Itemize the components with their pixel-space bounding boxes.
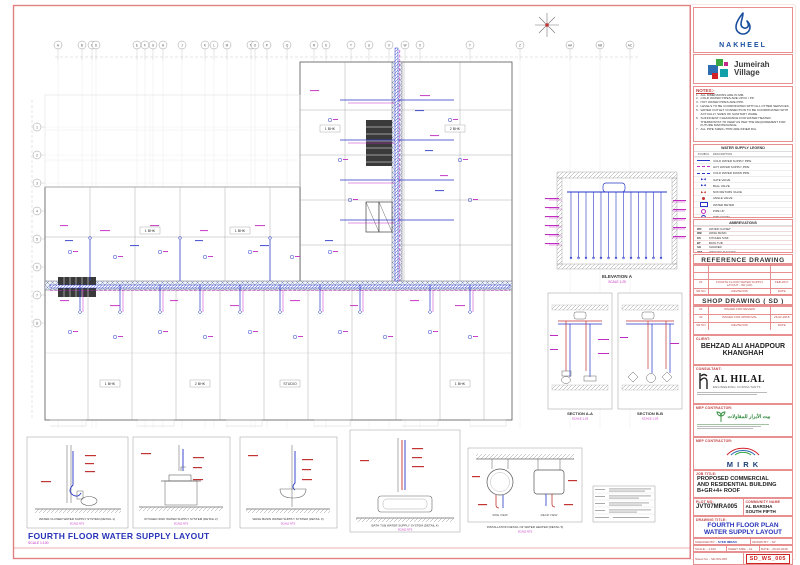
grid-bubble: Z [519, 43, 521, 47]
svg-text:BATH TUB WATER SUPPLY SYSTEM (: BATH TUB WATER SUPPLY SYSTEM (DETAIL 4) [372, 524, 439, 528]
shop-drawing-header: SHOP DRAWING ( SD ) [693, 295, 793, 305]
svg-text:INSTALLATION DETAIL OF WATER H: INSTALLATION DETAIL OF WATER HEATER (DET… [487, 525, 564, 529]
detail-wash-basin: WASH BASIN WATER SUPPLY SYSTEM (DETAIL 3… [240, 437, 337, 528]
drawing-title-line2: WATER SUPPLY LAYOUT [694, 529, 792, 536]
nakheel-droplet-icon [731, 11, 755, 37]
legend-symbol-valve-red: ▶◀ [701, 191, 706, 194]
svg-text:WASH BASIN WATER SUPPLY SYSTEM: WASH BASIN WATER SUPPLY SYSTEM (DETAIL 3… [252, 517, 323, 521]
layout-scale: SCALE 1:100 [28, 541, 210, 545]
mep1-name: بيت الأبرار للمقاولات [728, 414, 771, 420]
legend-symbol-line-blue-dash [697, 173, 710, 174]
plot-value: JVT07MRA005 [694, 504, 743, 510]
floor-plan-canvas: ABCDEFGHJKLMNOPQRSTUVWXYZAAABAC12345678 [0, 0, 800, 565]
detail-kitchen-sink: KITCHEN SINK WATER SUPPLY SYSTEM (DETAIL… [133, 437, 230, 528]
nakheel-logo-box: NAKHEEL [693, 7, 793, 53]
svg-text:SECTION B-B: SECTION B-B [637, 411, 663, 416]
client-label: CLIENT: [694, 336, 792, 341]
abbreviations-box: ABBREVIATIONS WCWATER CLOSETWBWASH BASIN… [693, 219, 793, 253]
meta-row-3: Sheet No: - SD-WS-005 SD_WS_005 [693, 552, 793, 565]
consultant-name: AL HILAL [713, 374, 765, 385]
grid-bubble: 7 [36, 293, 38, 297]
legend-col-symbol: SYMBOL [694, 152, 713, 156]
svg-text:SCALE 1:25: SCALE 1:25 [572, 417, 589, 421]
stamp-cell: SD_WS_005 [743, 553, 793, 565]
revision-row [694, 272, 792, 279]
roof-terrace-outline [45, 95, 300, 187]
svg-text:WATER CLOSER WATER SUPPLY SYST: WATER CLOSER WATER SUPPLY SYSTEM (DETAIL… [39, 517, 115, 521]
legend-symbol-valve-blue: ▶◀ [701, 178, 706, 181]
legend-col-desc: DESCRIPTION [713, 152, 732, 156]
client-box: CLIENT: BEHZAD ALI AHADPOUR KHANGHAH [693, 335, 793, 365]
svg-text:SCALE 1:25: SCALE 1:25 [608, 280, 626, 284]
mep1-address-line [697, 428, 753, 429]
balconies [50, 420, 506, 426]
revision-row: 01FOURTH FLOOR WATER SUPPLY LAYOUT - SD … [694, 279, 792, 288]
grid-bubble: 5 [36, 237, 38, 241]
svg-text:1 BHK: 1 BHK [455, 382, 466, 386]
heater-notes-table [593, 486, 655, 522]
mep-contractor-1-box: MEP CONTRACTOR: بيت الأبرار للمقاولات [693, 404, 793, 437]
shop-drawing-table: 01ISSUED FOR REVIEW02ISSUED FOR APPROVAL… [693, 305, 793, 335]
meta-row-2: SCALE: - 1:100 SHEET SIZE: - A1 DATE: - … [693, 545, 793, 552]
layout-title: FOURTH FLOOR WATER SUPPLY LAYOUT [28, 531, 210, 541]
checked-by-value: SYED IMRAN [718, 540, 737, 544]
svg-text:KITCHEN SINK WATER SUPPLY SYST: KITCHEN SINK WATER SUPPLY SYSTEM (DETAIL… [144, 517, 217, 521]
legend-symbol-line-magenta [697, 166, 710, 167]
revision-row: SR NOREVISIONSDATE [694, 288, 792, 295]
grid-bubble: P [266, 43, 268, 47]
legend-rows: COLD WATER SUPPLY PIPEHOT WATER SUPPLY P… [694, 157, 792, 218]
svg-text:SECTION A-A: SECTION A-A [567, 411, 593, 416]
consultant-address-line [697, 394, 757, 395]
mep2-name: M I R K [694, 461, 792, 469]
svg-text:1 BHK: 1 BHK [145, 229, 156, 233]
client-name-line2: KHANGHAH [694, 350, 792, 357]
shop-drawing-title: SHOP DRAWING ( SD ) [694, 296, 792, 305]
village-text: Village [734, 69, 770, 78]
grid-bubble: L [213, 43, 215, 47]
legend-symbol-line-blue [697, 160, 710, 161]
abbreviation-row: WMWASHING MACHINE [694, 249, 792, 253]
drawing-title-line1: FOURTH FLOOR PLAN [694, 522, 792, 529]
drawing-title-box: DRAWING TITLE: FOURTH FLOOR PLAN WATER S… [693, 516, 793, 538]
mep1-label: MEP CONTRACTOR: [694, 405, 792, 410]
jumeirah-village-icon [708, 59, 730, 81]
svg-text:ELEVATION A: ELEVATION A [602, 274, 633, 279]
revision-row: SR NOREVISIONSDATE [694, 322, 792, 330]
svg-text:2 BHK: 2 BHK [195, 382, 206, 386]
mirk-arcs-icon [723, 445, 763, 456]
meta-row-1: CHECKED BY: - SYED IMRAN DRAWN BY: - SP [693, 538, 793, 545]
sheet-number-stamp: SD_WS_005 [746, 554, 790, 564]
grid-bubble: T [350, 43, 352, 47]
svg-text:STUDIO: STUDIO [283, 382, 297, 386]
svg-text:2 BHK: 2 BHK [450, 127, 461, 131]
grid-bubble: 1 [36, 125, 38, 129]
jumeirah-village-logo-box: Jumeirah Village [693, 54, 793, 84]
svg-text:SIDE VIEW: SIDE VIEW [492, 513, 508, 517]
notes-box: NOTES:- 1.ALL DIMENSIONS ARE IN MM.2.COL… [693, 86, 793, 142]
job-title-box: JOB TITLE: PROPOSED COMMERCIAL AND RESID… [693, 470, 793, 498]
reference-drawing-table: 01FOURTH FLOOR WATER SUPPLY LAYOUT - SD … [693, 264, 793, 295]
grid-bubble: 6 [36, 265, 38, 269]
notes-list: 1.ALL DIMENSIONS ARE IN MM.2.COLD WATER … [694, 94, 792, 133]
reference-drawing-title: REFERENCE DRAWING [694, 255, 792, 264]
svg-text:SCALE NTS: SCALE NTS [174, 522, 189, 526]
building-walls [45, 62, 512, 420]
grid-bubble: S [325, 43, 327, 47]
detail-water-closet: WATER CLOSER WATER SUPPLY SYSTEM (DETAIL… [27, 437, 128, 528]
svg-text:SCALE NTS: SCALE NTS [398, 528, 413, 532]
svg-text:SCALE NTS: SCALE NTS [518, 530, 533, 534]
grid-bubble: F [144, 43, 146, 47]
drawn-by-cell: DRAWN BY: - SP [750, 539, 792, 544]
detail-water-heater: SIDE VIEW REAR VIEW INSTALLATION DETAIL … [468, 448, 582, 534]
revision-row: 02ISSUED FOR APPROVAL26-02-2018 [694, 314, 792, 322]
grid-bubble: 4 [36, 209, 38, 213]
legend-symbol-dot-magenta [701, 209, 706, 214]
revision-row: 01ISSUED FOR REVIEW [694, 306, 792, 314]
grid-bubble: B [81, 43, 83, 47]
nakheel-wordmark: NAKHEEL [694, 42, 792, 49]
legend-symbol-valve-blue: ▶◀ [701, 184, 706, 187]
note-item: 7.ALL PIPE SIZES / PPR ARE INNER DIA. [694, 128, 792, 132]
plot-community-row: PLOT NO: JVT07MRA005 COMMUNITY NAME AL B… [693, 498, 793, 516]
grid-bubble: AC [628, 43, 633, 47]
date-cell: DATE: - 26-02-2018 [759, 546, 792, 551]
grid-bubble: M [226, 43, 229, 47]
svg-text:1 BHK: 1 BHK [235, 229, 246, 233]
community-line2: SOUTH FIFTH [744, 509, 793, 514]
consultant-box: CONSULTANT: AL HILAL ENGINEERING CONSULT… [693, 365, 793, 404]
grid-bubble: E [136, 43, 138, 47]
mep1-logo-icon [716, 411, 726, 423]
legend-row: PIPE DOWN [694, 214, 792, 218]
client-name-line1: BEHZAD ALI AHADPOUR [694, 343, 792, 350]
elevator-core [366, 202, 392, 232]
drawing-sheet: ABCDEFGHJKLMNOPQRSTUVWXYZAAABAC12345678 [0, 0, 800, 565]
legend-title: WATER SUPPLY LEGEND [694, 145, 792, 152]
north-compass-icon [535, 13, 559, 37]
job-title-line3: B+GR+4+ ROOF [694, 488, 792, 494]
detail-bath-tub: BATH TUB WATER SUPPLY SYSTEM (DETAIL 4) … [350, 430, 460, 532]
sheet-no-cell: Sheet No: - SD-WS-005 [694, 556, 743, 562]
consultant-sub: ENGINEERING CONSULTANTS [713, 385, 765, 389]
grid-bubble: AB [598, 43, 602, 47]
layout-title-block: FOURTH FLOOR WATER SUPPLY LAYOUT SCALE 1… [28, 531, 210, 545]
section-aa-detail: SECTION A-A SCALE 1:25 [548, 293, 612, 421]
legend-box: WATER SUPPLY LEGEND SYMBOL DESCRIPTION C… [693, 144, 793, 218]
revision-row [694, 265, 792, 272]
svg-text:SCALE NTS: SCALE NTS [281, 522, 296, 526]
legend-symbol-box-blue [700, 202, 708, 208]
grid-bubble: 2 [36, 153, 38, 157]
checked-by-cell: CHECKED BY: - SYED IMRAN [694, 539, 750, 544]
abbreviation-rows: WCWATER CLOSETWBWASH BASINKSKITCHEN SINK… [694, 226, 792, 253]
al-hilal-logo-icon [697, 372, 710, 390]
grid-bubble: 8 [36, 321, 38, 325]
title-block-panel: NAKHEEL Jumeirah Village NOTES:- 1.ALL D… [690, 5, 795, 559]
grid-bubble: 3 [36, 181, 38, 185]
elevation-a-detail: ELEVATION A SCALE 1:25 [545, 172, 686, 284]
svg-text:1 BHK: 1 BHK [325, 127, 336, 131]
legend-symbol-dot-red [702, 197, 705, 200]
svg-text:SCALE 1:25: SCALE 1:25 [642, 417, 659, 421]
section-bb-detail: SECTION B-B SCALE 1:25 [618, 293, 682, 421]
sheet-size-cell: SHEET SIZE: - A1 [726, 546, 759, 551]
mep-contractor-2-box: MEP CONTRACTOR: M I R K [693, 437, 793, 470]
grid-bubble: W [403, 43, 406, 47]
svg-text:REAR VIEW: REAR VIEW [541, 513, 558, 517]
svg-text:SCALE NTS: SCALE NTS [70, 522, 85, 526]
svg-text:1 BHK: 1 BHK [105, 382, 116, 386]
legend-symbol-dot-blue [701, 215, 706, 218]
scale-cell: SCALE: - 1:100 [694, 546, 726, 551]
reference-drawing-header: REFERENCE DRAWING [693, 254, 793, 264]
